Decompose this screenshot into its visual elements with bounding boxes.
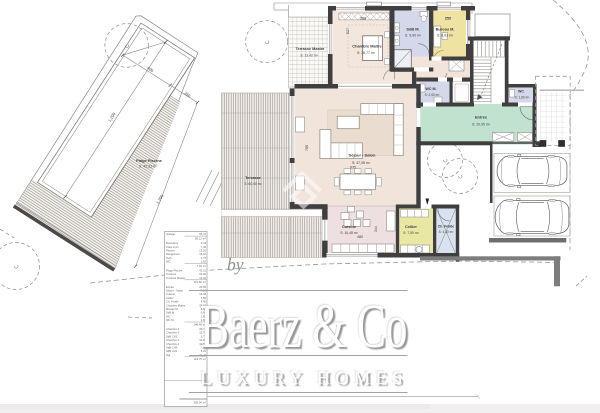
svg-text:Bureau M.: Bureau M.: [166, 307, 179, 311]
svg-text:Chambre 1: Chambre 1: [166, 338, 180, 342]
svg-text:Chambre 3: Chambre 3: [166, 331, 180, 335]
svg-text:S: 4,40 m²: S: 4,40 m²: [439, 230, 454, 234]
svg-text:Séjour - Salon: Séjour - Salon: [349, 153, 376, 158]
svg-text:WC M.: WC M.: [426, 87, 437, 91]
svg-text:250: 250: [445, 17, 451, 21]
svg-text:527: 527: [346, 28, 350, 34]
svg-text:S: 9,90 m²: S: 9,90 m²: [405, 34, 422, 38]
svg-text:Dgt: Dgt: [166, 353, 170, 357]
svg-text:by: by: [227, 255, 244, 275]
svg-text:WC: WC: [518, 90, 524, 94]
svg-text:S: 20,95 m²: S: 20,95 m²: [472, 123, 491, 127]
svg-text:Chambre 4: Chambre 4: [166, 342, 180, 346]
svg-text:4,75: 4,75: [201, 256, 207, 260]
svg-text:S: 2,60 m²: S: 2,60 m²: [425, 93, 440, 97]
svg-text:7,04 m²: 7,04 m²: [197, 264, 207, 268]
svg-text:WC: WC: [166, 314, 171, 318]
svg-text:Piscine: Piscine: [166, 249, 175, 253]
svg-text:LUXURY HOMES: LUXURY HOMES: [200, 368, 408, 389]
svg-text:480: 480: [357, 235, 363, 239]
svg-text:Cellier: Cellier: [166, 296, 174, 300]
svg-text:SdB M.: SdB M.: [166, 311, 175, 315]
svg-text:22,20: 22,20: [199, 249, 206, 253]
svg-text:Terrasse: Terrasse: [245, 176, 261, 180]
svg-text:S: 7,55 m²: S: 7,55 m²: [403, 231, 420, 235]
svg-text:765: 765: [305, 145, 309, 151]
svg-text:Tech: Tech: [166, 256, 172, 260]
svg-text:388: 388: [360, 17, 366, 21]
svg-text:Garage: Garage: [166, 232, 175, 236]
svg-text:Chambre Maitre: Chambre Maitre: [166, 303, 186, 307]
svg-text:S: 13,42 m²: S: 13,42 m²: [300, 54, 318, 58]
svg-text:S: 1,80 m²: S: 1,80 m²: [515, 96, 530, 100]
svg-text:18,32: 18,32: [199, 252, 206, 256]
svg-text:358,04 m²: 358,04 m²: [193, 400, 206, 404]
svg-text:115,62 m²: 115,62 m²: [194, 280, 206, 284]
svg-text:9,43: 9,43: [201, 241, 207, 245]
svg-text:80,12 m²: 80,12 m²: [195, 236, 206, 240]
svg-text:WC M.: WC M.: [166, 318, 174, 322]
svg-text:Chambre 2: Chambre 2: [166, 327, 180, 331]
svg-text:Bureau M.: Bureau M.: [436, 27, 455, 32]
svg-text:SdB CH4: SdB CH4: [166, 346, 178, 350]
svg-text:Chambre Maitre: Chambre Maitre: [352, 44, 382, 49]
svg-text:SdB M.: SdB M.: [406, 27, 419, 32]
svg-text:Terrasse: Terrasse: [166, 272, 177, 276]
svg-text:Entrée: Entrée: [166, 285, 174, 289]
svg-text:S: 47,08 m²: S: 47,08 m²: [352, 161, 371, 165]
svg-text:SdB CH1: SdB CH1: [166, 349, 178, 353]
svg-text:Ch. Froide: Ch. Froide: [166, 300, 179, 304]
svg-text:SdB CH2: SdB CH2: [166, 334, 178, 338]
svg-text:Baerz & Co: Baerz & Co: [200, 293, 408, 361]
svg-text:344: 344: [374, 226, 378, 232]
svg-text:42,31: 42,31: [199, 269, 206, 273]
svg-text:60,00: 60,00: [199, 272, 206, 276]
svg-text:Rangement: Rangement: [166, 252, 180, 256]
svg-text:Cuisine: Cuisine: [342, 224, 357, 229]
svg-text:S: 16,48 m²: S: 16,48 m²: [340, 231, 358, 235]
svg-text:20,95: 20,95: [199, 285, 206, 289]
svg-text:Plage Piscine: Plage Piscine: [136, 158, 163, 163]
svg-text:WC: WC: [166, 260, 171, 264]
svg-text:Cellier: Cellier: [405, 224, 417, 229]
svg-text:Buanderie: Buanderie: [166, 241, 179, 245]
svg-text:Terrasse Master: Terrasse Master: [166, 276, 185, 280]
svg-text:S: 42,31 m²: S: 42,31 m²: [139, 165, 158, 169]
svg-text:S: 8,93 m²: S: 8,93 m²: [437, 34, 454, 38]
svg-text:Cave à vin: Cave à vin: [166, 245, 179, 249]
svg-text:Entrée: Entrée: [475, 115, 488, 120]
svg-text:Terrasse Master: Terrasse Master: [296, 47, 325, 51]
svg-text:7,36: 7,36: [201, 245, 207, 249]
svg-text:Cuisine: Cuisine: [166, 292, 175, 296]
svg-text:S: 60,00 m²: S: 60,00 m²: [244, 182, 262, 186]
svg-text:S: 28,77 m²: S: 28,77 m²: [357, 51, 376, 55]
svg-text:Séjour - Salon: Séjour - Salon: [166, 289, 184, 293]
svg-text:Plage Piscine: Plage Piscine: [166, 269, 183, 273]
svg-text:Ch. Froide: Ch. Froide: [438, 225, 454, 229]
